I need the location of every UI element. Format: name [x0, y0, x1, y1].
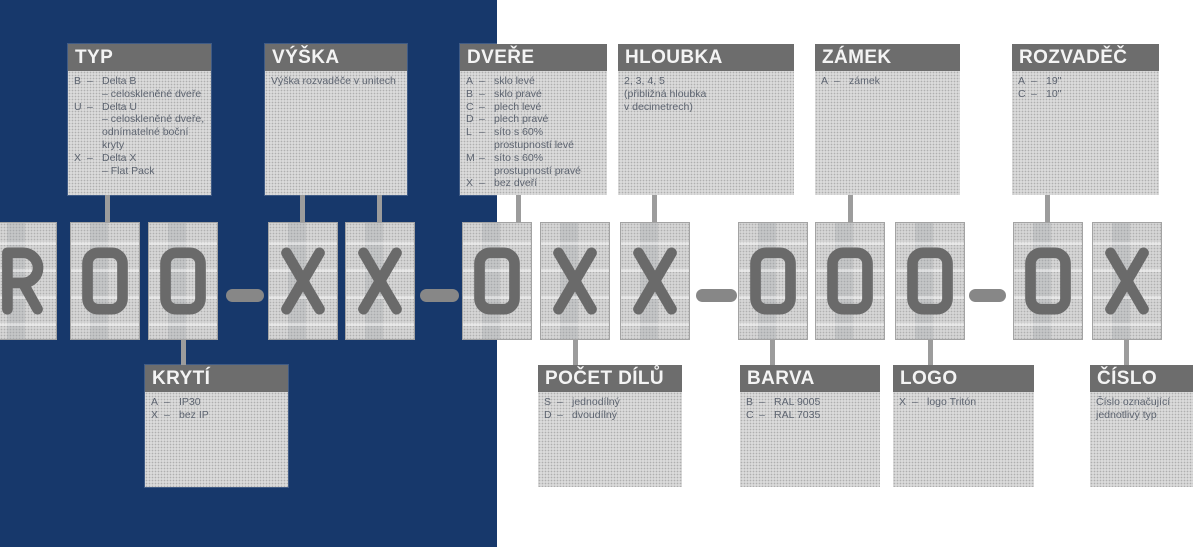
code-char-12	[1013, 222, 1083, 340]
label-title-cislo: ČÍSLO	[1090, 365, 1193, 392]
code-char-7	[540, 222, 610, 340]
label-box-logo: LOGO X–logo Tritón	[893, 365, 1034, 487]
label-box-zamek: ZÁMEK A–zámek	[815, 44, 960, 195]
code-char-4	[268, 222, 338, 340]
code-separator-dash-4	[969, 289, 1006, 302]
connector-cislo	[1124, 340, 1129, 365]
label-title-dvere: DVEŘE	[460, 44, 607, 71]
label-title-kryti: KRYTÍ	[145, 365, 288, 392]
label-title-pocet-dilu: POČET DÍLŮ	[538, 365, 682, 392]
connector-hloubka	[652, 195, 657, 222]
connector-vyska-right	[377, 195, 382, 222]
code-char-3	[148, 222, 218, 340]
label-body-barva: B–RAL 9005C–RAL 7035	[740, 392, 880, 487]
code-separator-dash-1	[226, 289, 264, 302]
code-char-13	[1092, 222, 1162, 340]
label-box-kryti: KRYTÍ A–IP30X–bez IP	[145, 365, 288, 487]
connector-vyska-left	[300, 195, 305, 222]
label-box-typ: TYP B–Delta B– celoskleněné dveřeU–Delta…	[68, 44, 211, 195]
code-char-11	[895, 222, 965, 340]
label-box-hloubka: HLOUBKA 2, 3, 4, 5(přibližná hloubkav de…	[618, 44, 794, 195]
code-char-10	[815, 222, 885, 340]
label-body-kryti: A–IP30X–bez IP	[145, 392, 288, 487]
label-body-vyska: Výška rozvaděče v unitech	[265, 71, 407, 195]
label-title-hloubka: HLOUBKA	[618, 44, 794, 71]
code-char-2	[70, 222, 140, 340]
label-title-rozvadec: ROZVADĚČ	[1012, 44, 1159, 71]
code-char-6	[462, 222, 532, 340]
label-body-pocet-dilu: S–jednodílnýD–dvoudílný	[538, 392, 682, 487]
label-body-zamek: A–zámek	[815, 71, 960, 195]
code-char-8	[620, 222, 690, 340]
connector-rozvadec	[1045, 195, 1050, 222]
connector-pocet-dilu	[573, 340, 578, 365]
label-box-cislo: ČÍSLO Číslo označujícíjednotlivý typ	[1090, 365, 1193, 487]
code-char-1	[0, 222, 57, 340]
label-body-rozvadec: A–19"C–10"	[1012, 71, 1159, 195]
connector-logo	[928, 340, 933, 365]
label-title-logo: LOGO	[893, 365, 1034, 392]
code-char-5	[345, 222, 415, 340]
label-title-barva: BARVA	[740, 365, 880, 392]
connector-dvere	[516, 195, 521, 222]
code-separator-dash-2	[420, 289, 459, 302]
label-body-logo: X–logo Tritón	[893, 392, 1034, 487]
label-title-typ: TYP	[68, 44, 211, 71]
label-title-zamek: ZÁMEK	[815, 44, 960, 71]
label-box-barva: BARVA B–RAL 9005C–RAL 7035	[740, 365, 880, 487]
connector-zamek	[848, 195, 853, 222]
product-code-diagram: TYP B–Delta B– celoskleněné dveřeU–Delta…	[0, 0, 1195, 547]
label-body-cislo: Číslo označujícíjednotlivý typ	[1090, 392, 1193, 487]
connector-barva	[770, 340, 775, 365]
label-box-dvere: DVEŘE A–sklo levéB–sklo pravéC–plech lev…	[460, 44, 607, 195]
label-body-typ: B–Delta B– celoskleněné dveřeU–Delta U– …	[68, 71, 211, 195]
label-box-pocet-dilu: POČET DÍLŮ S–jednodílnýD–dvoudílný	[538, 365, 682, 487]
label-title-vyska: VÝŠKA	[265, 44, 407, 71]
code-char-9	[738, 222, 808, 340]
code-separator-dash-3	[696, 289, 737, 302]
connector-typ	[105, 195, 110, 222]
connector-kryti	[181, 340, 186, 365]
label-box-rozvadec: ROZVADĚČ A–19"C–10"	[1012, 44, 1159, 195]
label-box-vyska: VÝŠKA Výška rozvaděče v unitech	[265, 44, 407, 195]
label-body-dvere: A–sklo levéB–sklo pravéC–plech levéD–ple…	[460, 71, 607, 195]
label-body-hloubka: 2, 3, 4, 5(přibližná hloubkav decimetrec…	[618, 71, 794, 195]
